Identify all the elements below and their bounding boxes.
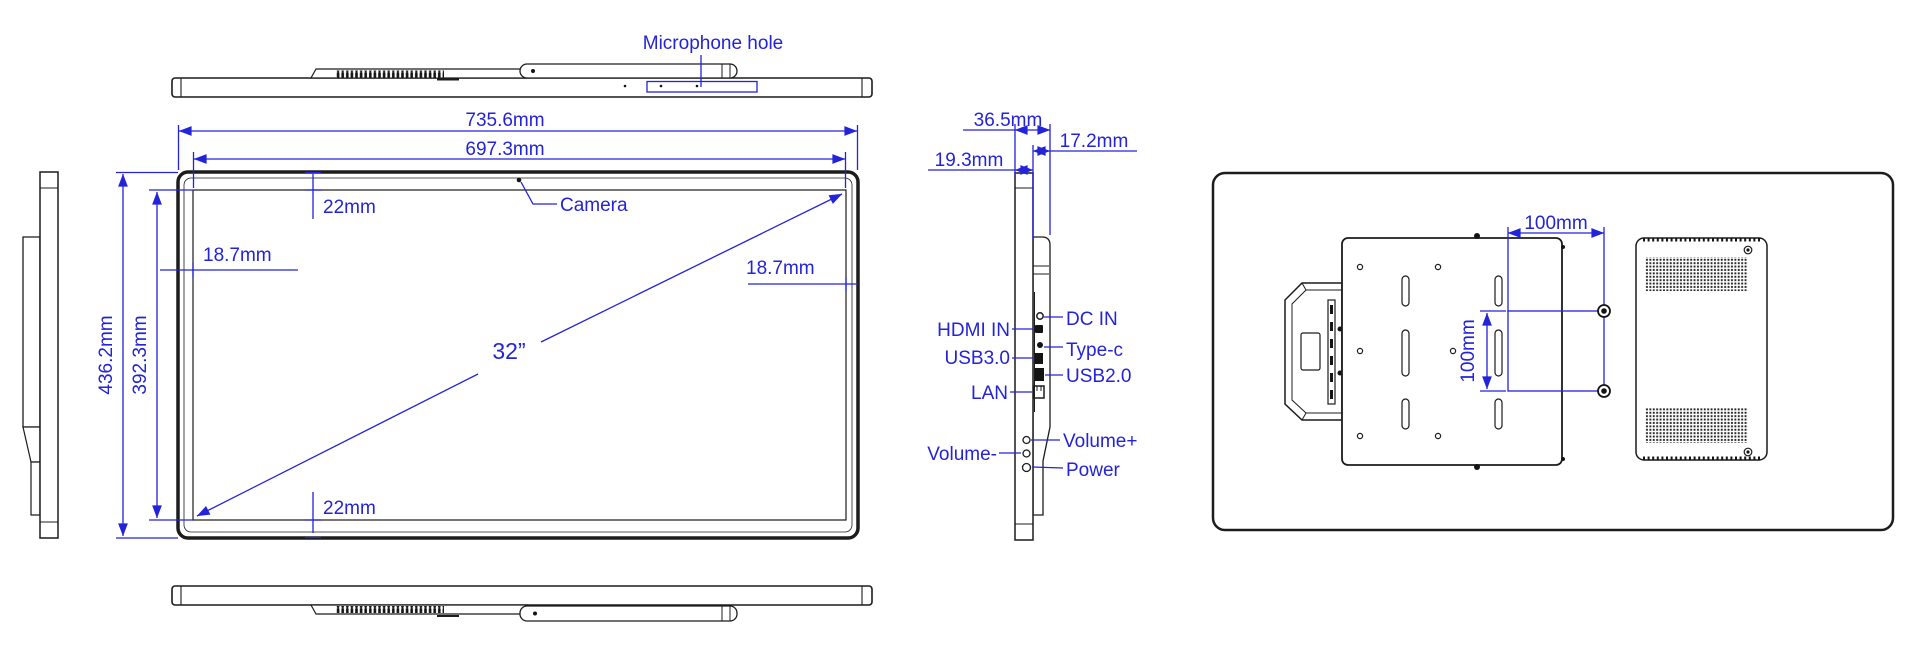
back-vent-box: [1636, 238, 1767, 460]
vent-grille-bottom: [1645, 408, 1748, 443]
volume-up-label: Volume+: [1063, 431, 1137, 452]
top-bezel-label: 22mm: [323, 197, 376, 218]
right-bezel-label: 18.7mm: [746, 258, 815, 279]
mounting-plate-outline: [1342, 238, 1562, 465]
bottom-view: [172, 586, 872, 621]
dc-in-label: DC IN: [1066, 309, 1118, 330]
bracket-outline: [1285, 283, 1342, 420]
vesa-width-label: 100mm: [1524, 213, 1587, 234]
bottom-camera-hole: [533, 612, 537, 616]
panel-screw: [1561, 245, 1565, 249]
type-c-label: Type-c: [1066, 340, 1123, 361]
left-view-back-lower: [31, 462, 40, 515]
back-bracket: [1285, 283, 1343, 420]
type-c-port: [1037, 342, 1043, 348]
usb2-port: [1035, 368, 1044, 381]
active-height-label: 392.3mm: [130, 315, 151, 394]
panel-screw: [1561, 457, 1565, 461]
front-view: Camera 32” 735.6mm 697.3mm 436.2mm: [96, 110, 858, 538]
bracket-slot: [1330, 322, 1333, 331]
dim-total-depth: 36.5mm: [963, 110, 1050, 235]
plate-edge-screw: [1474, 464, 1480, 470]
overall-height-label: 436.2mm: [96, 315, 117, 394]
bracket-slot: [1330, 390, 1333, 399]
mic-hole-dot: [660, 85, 663, 88]
top-camera-hole: [531, 69, 535, 73]
bracket-slot: [1330, 305, 1333, 314]
panel-depth-label: 19.3mm: [935, 150, 1004, 171]
top-camera-housing: [520, 64, 737, 78]
usb3-label: USB3.0: [945, 348, 1010, 369]
top-view-body: [172, 78, 872, 97]
vesa-screw-center: [1601, 388, 1607, 394]
active-width-label: 697.3mm: [465, 139, 544, 160]
plate-edge-screw: [1474, 233, 1480, 239]
microphone-hole-label: Microphone hole: [643, 33, 783, 54]
left-bezel-label: 18.7mm: [203, 245, 272, 266]
vesa-height-label: 100mm: [1458, 319, 1479, 382]
left-view-back-box: [23, 237, 40, 427]
usb2-label: USB2.0: [1066, 366, 1131, 387]
dim-back-depth: 17.2mm: [1033, 131, 1137, 240]
front-camera-dot: [517, 178, 522, 183]
back-view: 100mm 100mm: [1213, 173, 1893, 530]
mic-hole-dot: [624, 85, 627, 88]
bottom-vent-slats: [336, 606, 444, 613]
side-panel: [1015, 173, 1033, 540]
bottom-view-body: [172, 586, 872, 605]
bracket-slot: [1330, 356, 1333, 365]
left-side-view: [23, 172, 58, 538]
top-vent-slats: [336, 71, 444, 78]
screen-size-label: 32”: [492, 338, 525, 364]
mic-hole-dot: [696, 85, 699, 88]
dim-panel-depth: 19.3mm: [928, 150, 1033, 171]
bracket-slot: [1330, 339, 1333, 348]
right-side-view: 36.5mm 17.2mm 19.3mm HDMI IN DC IN Type-…: [927, 110, 1137, 540]
hdmi-label: HDMI IN: [937, 320, 1010, 341]
vent-screw-center: [1746, 450, 1749, 453]
vesa-screw-center: [1601, 308, 1607, 314]
hdmi-port: [1035, 325, 1043, 333]
bottom-bezel-label: 22mm: [323, 498, 376, 519]
technical-drawing-page: Microphone hole Camera: [0, 0, 1920, 653]
technical-drawing: Microphone hole Camera: [0, 0, 1920, 653]
camera-label: Camera: [560, 195, 628, 216]
back-mounting-plate: [1342, 233, 1565, 470]
bottom-camera-housing: [520, 606, 737, 621]
total-depth-label: 36.5mm: [974, 110, 1043, 131]
back-depth-label: 17.2mm: [1060, 131, 1129, 152]
left-view-panel: [40, 172, 58, 538]
lan-label: LAN: [971, 383, 1008, 404]
overall-width-label: 735.6mm: [465, 110, 544, 131]
vent-grille-top: [1645, 257, 1748, 291]
vent-screw-center: [1746, 248, 1749, 251]
volume-down-label: Volume-: [927, 444, 997, 465]
power-label: Power: [1066, 460, 1121, 481]
bracket-slot: [1330, 373, 1333, 382]
left-view-back-chamfer: [23, 427, 40, 462]
top-view: Microphone hole: [172, 33, 872, 97]
usb3-port: [1035, 353, 1043, 364]
